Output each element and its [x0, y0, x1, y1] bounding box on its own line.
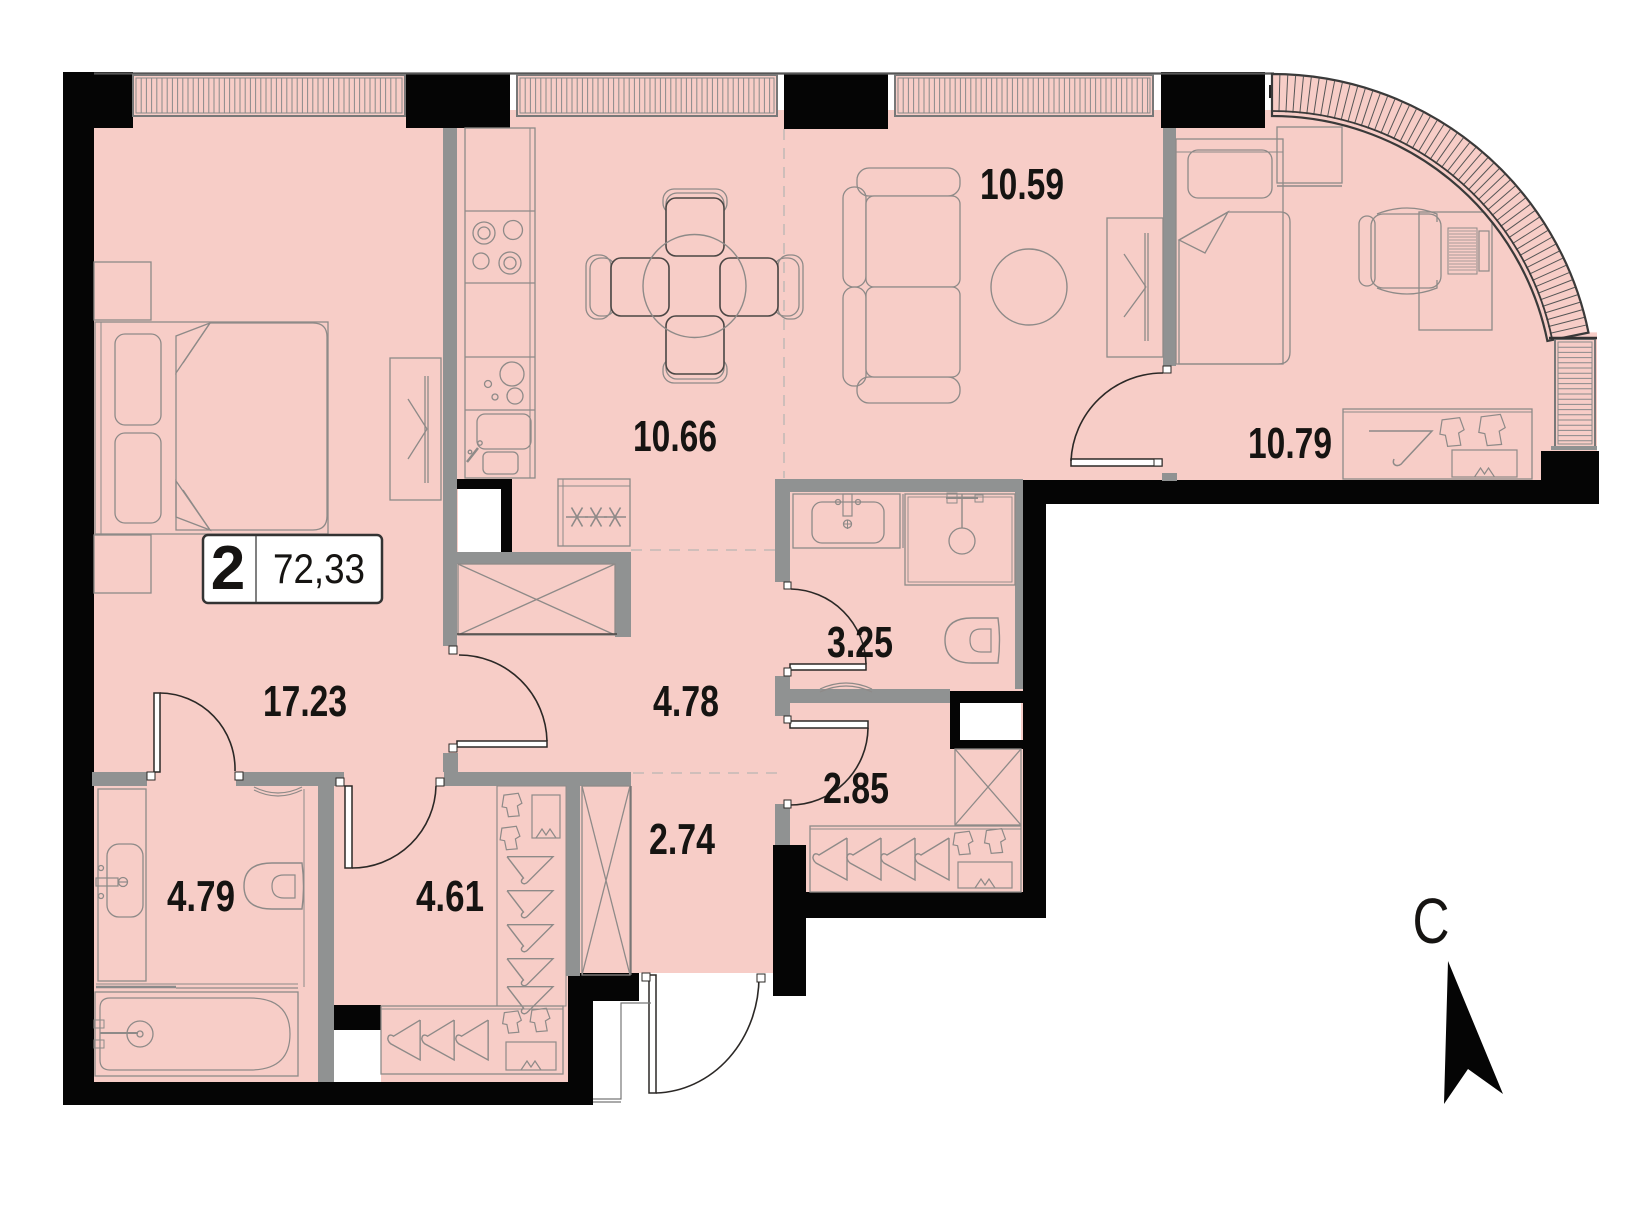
svg-text:2.74: 2.74	[649, 815, 715, 864]
svg-text:72,33: 72,33	[273, 545, 365, 592]
svg-text:2.85: 2.85	[823, 764, 889, 813]
svg-text:4.79: 4.79	[167, 872, 235, 921]
svg-text:17.23: 17.23	[263, 677, 347, 726]
svg-text:4.61: 4.61	[416, 872, 484, 921]
svg-text:2: 2	[211, 534, 245, 603]
svg-text:10.79: 10.79	[1248, 419, 1332, 468]
svg-text:10.66: 10.66	[633, 412, 717, 461]
svg-text:3.25: 3.25	[827, 618, 893, 667]
svg-text:С: С	[1413, 885, 1450, 957]
svg-text:10.59: 10.59	[980, 160, 1064, 209]
svg-text:4.78: 4.78	[653, 677, 719, 726]
